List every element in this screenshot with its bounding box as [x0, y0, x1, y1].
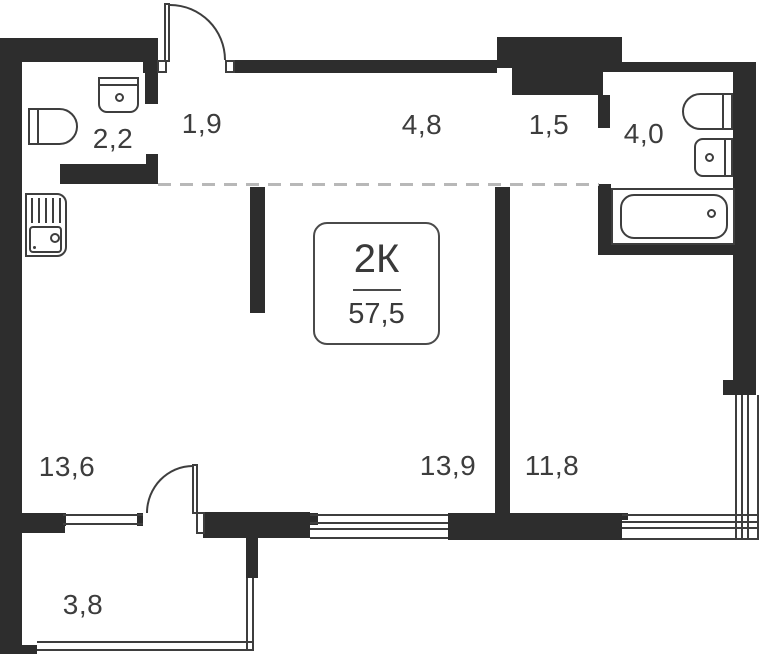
wall-kitchen-partial	[250, 187, 265, 313]
corridor-dashed-boundary	[158, 183, 599, 186]
window-bedroom	[735, 395, 737, 540]
window-living	[310, 522, 448, 524]
label-kitchen-living: 13,6	[39, 451, 96, 483]
wall-right	[733, 62, 756, 380]
wall-wc-bottom	[60, 164, 158, 184]
window-living	[310, 528, 448, 530]
label-living-room: 13,9	[420, 450, 477, 482]
label-bathroom: 4,0	[624, 118, 664, 150]
kitchen-sink-faucet	[50, 233, 60, 243]
wall-living-bottom	[448, 513, 622, 540]
window-bedroom	[622, 521, 759, 523]
window-living	[310, 537, 448, 539]
balcony-parapet	[252, 578, 254, 651]
toilet-bathroom-icon	[682, 93, 733, 130]
window-bedroom	[622, 538, 759, 540]
wall-kitchen-bottom	[22, 513, 65, 533]
entry-door-jamb	[225, 60, 235, 73]
window-bedroom	[757, 395, 759, 540]
window-bedroom	[741, 395, 743, 540]
wall-right-foot	[723, 380, 756, 395]
window-kitchen	[63, 523, 143, 525]
wall-entry-stub	[143, 60, 158, 73]
label-balcony: 3,8	[63, 589, 103, 621]
kitchen-sink-drainboard	[31, 198, 61, 223]
sink-bathroom-faucet	[705, 153, 714, 162]
wall-left-foot	[0, 645, 37, 654]
unit-area: 57,5	[348, 298, 404, 331]
wall-living-bedroom	[495, 187, 510, 515]
wall-top-right	[603, 62, 733, 72]
wall-bathroom-bottom	[598, 245, 735, 255]
balcony-parapet	[246, 578, 248, 651]
wall-wc-right-stub	[145, 73, 158, 104]
label-corridor: 4,8	[402, 109, 442, 141]
sink-wc-faucet	[115, 93, 124, 102]
floor-plan: 1,9 2,2 4,8 1,5 4,0 13,6 13,9 11,8 3,8 2…	[0, 0, 762, 654]
entry-door-arc	[170, 4, 226, 60]
wall-balcony-column	[246, 512, 258, 578]
toilet-wc-tank-line	[37, 110, 39, 143]
sink-wc-edge-line	[99, 84, 138, 86]
unit-type: 2К	[354, 237, 400, 282]
label-bedroom: 11,8	[525, 450, 579, 482]
balcony-parapet	[37, 641, 254, 643]
label-wc: 2,2	[93, 123, 133, 155]
wall-bathroom-pillar	[598, 95, 610, 128]
toilet-bathroom-tank-line	[722, 95, 724, 128]
window-bedroom	[747, 395, 749, 540]
unit-card-divider	[353, 289, 401, 291]
balcony-door-arc	[146, 465, 193, 513]
window-bedroom	[622, 514, 759, 516]
wall-left	[0, 52, 22, 654]
wall-top-middle	[234, 60, 497, 73]
window-bedroom	[622, 527, 759, 529]
balcony-parapet	[37, 649, 254, 651]
bathtub-drain	[707, 209, 716, 218]
toilet-wc-icon	[28, 108, 78, 145]
label-niche: 1,5	[529, 109, 569, 141]
window-kitchen	[63, 514, 143, 516]
wall-top-left	[0, 38, 158, 62]
balcony-door-jamb	[196, 512, 205, 534]
kitchen-sink-drain	[33, 246, 36, 249]
unit-card: 2К 57,5	[313, 222, 440, 345]
sink-bathroom-edge-line	[724, 139, 726, 176]
wall-top-block-lower	[512, 64, 603, 95]
label-entry-hall: 1,9	[182, 108, 222, 140]
window-living	[310, 514, 448, 516]
